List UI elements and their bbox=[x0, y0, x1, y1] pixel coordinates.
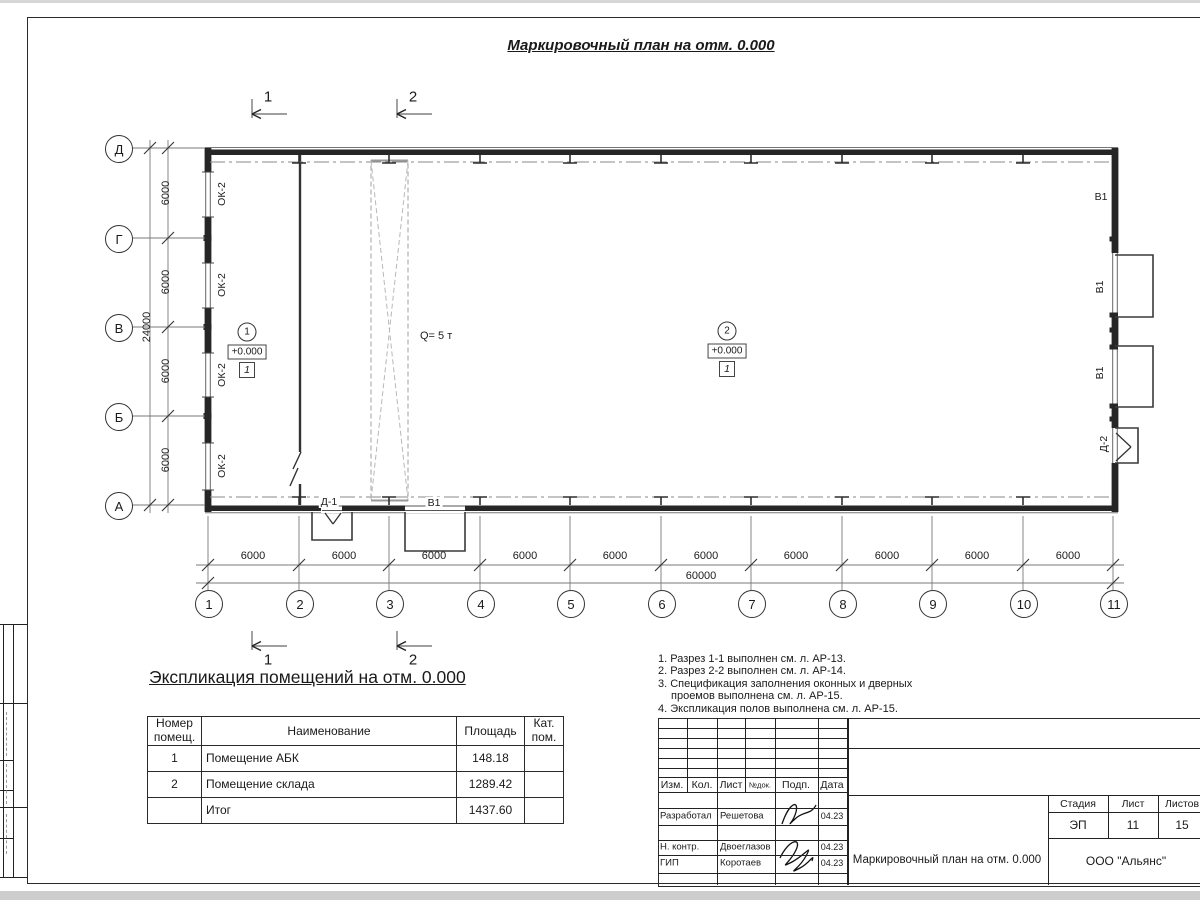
gate-mark: В1 bbox=[1094, 367, 1106, 380]
tb-role: Н. контр. bbox=[660, 842, 699, 853]
tb-header-data: Дата bbox=[820, 779, 843, 791]
tb-line bbox=[818, 718, 819, 885]
room-cat bbox=[525, 797, 564, 823]
gate-mark: В1 bbox=[426, 497, 443, 509]
tb-date: 04.23 bbox=[821, 858, 844, 868]
dim-6000: 6000 bbox=[160, 181, 172, 205]
table-header-row: Номер помещ. Наименование Площадь Кат. п… bbox=[148, 717, 564, 746]
table-row: 1 Помещение АБК 148.18 bbox=[148, 745, 564, 771]
table-row: Итог 1437.60 bbox=[148, 797, 564, 823]
axis-bubble-row: Б bbox=[105, 403, 133, 431]
note-line: 3. Спецификация заполнения оконных и две… bbox=[658, 678, 912, 690]
tb-line bbox=[1048, 812, 1200, 813]
dim-6000: 6000 bbox=[603, 550, 627, 562]
room-name: Помещение АБК bbox=[202, 745, 457, 771]
walls bbox=[202, 148, 1118, 514]
dim-6000: 6000 bbox=[160, 270, 172, 294]
dim-24000: 24000 bbox=[141, 312, 153, 343]
dim-6000: 6000 bbox=[160, 448, 172, 472]
axis-bubble-col: 10 bbox=[1010, 590, 1038, 618]
dim-6000: 6000 bbox=[422, 550, 446, 562]
window-mark: ОК-2 bbox=[216, 273, 228, 297]
dim-6000: 6000 bbox=[1056, 550, 1080, 562]
axis-bubble-row: А bbox=[105, 492, 133, 520]
section-mark-2: 2 bbox=[409, 89, 417, 106]
axis-bubble-row: В bbox=[105, 314, 133, 342]
tb-line bbox=[745, 718, 746, 792]
floor-type-mark: 1 bbox=[239, 362, 255, 378]
room-num: 2 bbox=[148, 771, 202, 797]
tb-doc-title: Маркировочный план на отм. 0.000 bbox=[853, 854, 1041, 866]
room-num bbox=[148, 797, 202, 823]
gate-mark: В1 bbox=[1093, 191, 1110, 203]
axis-bubble-col: 6 bbox=[648, 590, 676, 618]
tb-line bbox=[1158, 795, 1159, 838]
sheet-title: Маркировочный план на отм. 0.000 bbox=[507, 37, 774, 54]
explication-heading: Экспликация помещений на отм. 0.000 bbox=[149, 667, 466, 688]
tb-sheets-value: 15 bbox=[1175, 818, 1188, 832]
axis-bubble-col: 3 bbox=[376, 590, 404, 618]
room-number-1: 1 bbox=[238, 323, 257, 342]
room-num: 1 bbox=[148, 745, 202, 771]
tb-sheet-value: 11 bbox=[1127, 818, 1139, 832]
col-header-area: Площадь bbox=[457, 717, 525, 746]
room-area: 148.18 bbox=[457, 745, 525, 771]
tb-date: 04.23 bbox=[821, 811, 844, 821]
table-row: 2 Помещение склада 1289.42 bbox=[148, 771, 564, 797]
tb-line bbox=[847, 748, 1200, 749]
axis-bubble-col: 7 bbox=[738, 590, 766, 618]
dim-6000: 6000 bbox=[241, 550, 265, 562]
col-header-category: Кат. пом. bbox=[525, 717, 564, 746]
note-line: 2. Разрез 2-2 выполнен см. л. АР-14. bbox=[658, 665, 912, 677]
tb-line bbox=[1048, 795, 1049, 885]
section-cut-marks bbox=[252, 99, 432, 651]
tb-header-ndok: №док. bbox=[749, 781, 771, 790]
tb-stage-label: Стадия bbox=[1060, 798, 1096, 810]
tb-line bbox=[1048, 838, 1200, 839]
axis-bubble-row: Д bbox=[105, 135, 133, 163]
tb-header-izm: Изм. bbox=[661, 779, 684, 791]
note-line: 4. Экспликация полов выполнена см. л. АР… bbox=[658, 703, 912, 715]
door-mark-d1: Д-1 bbox=[319, 496, 339, 508]
tb-date: 04.23 bbox=[821, 842, 844, 852]
col-header-number: Номер помещ. bbox=[148, 717, 202, 746]
elevation-mark: +0.000 bbox=[228, 345, 267, 360]
tb-organization: ООО "Альянс" bbox=[1086, 854, 1166, 868]
floor-type-mark: 1 bbox=[719, 361, 735, 377]
elevation-mark: +0.000 bbox=[708, 344, 747, 359]
axis-bubble-col: 8 bbox=[829, 590, 857, 618]
tb-header-kol: Кол. bbox=[692, 779, 713, 791]
dim-6000: 6000 bbox=[160, 359, 172, 383]
tb-name: Решетова bbox=[720, 811, 764, 822]
room-area: 1289.42 bbox=[457, 771, 525, 797]
dim-6000: 6000 bbox=[332, 550, 356, 562]
tb-line bbox=[847, 795, 1200, 796]
dim-6000: 6000 bbox=[694, 550, 718, 562]
axis-bubble-col: 9 bbox=[919, 590, 947, 618]
axis-bubble-col: 2 bbox=[286, 590, 314, 618]
tb-line bbox=[775, 718, 776, 885]
room-name: Помещение склада bbox=[202, 771, 457, 797]
tb-role: ГИП bbox=[660, 858, 679, 869]
tb-line bbox=[1108, 795, 1109, 838]
door-mark-d2: Д-2 bbox=[1098, 436, 1110, 452]
window-mark: ОК-2 bbox=[216, 363, 228, 387]
room-name: Итог bbox=[202, 797, 457, 823]
crane-capacity-label: Q= 5 т bbox=[420, 330, 452, 342]
note-line: 1. Разрез 1-1 выполнен см. л. АР-13. bbox=[658, 653, 912, 665]
room-cat bbox=[525, 771, 564, 797]
room-number-2: 2 bbox=[718, 322, 737, 341]
axis-bubble-col: 5 bbox=[557, 590, 585, 618]
gate-mark: В1 bbox=[1094, 281, 1106, 294]
section-mark-2-bottom: 2 bbox=[409, 652, 417, 669]
dim-6000: 6000 bbox=[784, 550, 808, 562]
dim-60000: 60000 bbox=[684, 570, 719, 582]
tb-name: Двоеглазов bbox=[720, 842, 771, 853]
tb-line bbox=[687, 718, 688, 792]
axis-bubble-col: 4 bbox=[467, 590, 495, 618]
tb-sheet-label: Лист bbox=[1122, 798, 1145, 810]
section-mark-1-bottom: 1 bbox=[264, 652, 272, 669]
tb-role: Разработал bbox=[660, 811, 712, 822]
partition-wall bbox=[290, 155, 301, 505]
tb-line bbox=[847, 718, 849, 885]
column-marks bbox=[292, 155, 1030, 505]
section-mark-1: 1 bbox=[264, 89, 272, 106]
tb-sheets-label: Листов bbox=[1165, 798, 1199, 810]
explication-table: Номер помещ. Наименование Площадь Кат. п… bbox=[147, 716, 564, 824]
window-mark: ОК-2 bbox=[216, 454, 228, 478]
axis-bubble-col: 1 bbox=[195, 590, 223, 618]
axis-bubble-row: Г bbox=[105, 225, 133, 253]
note-line: проемов выполнена см. л. АР-15. bbox=[658, 690, 912, 702]
tb-name: Коротаев bbox=[720, 858, 761, 869]
col-header-name: Наименование bbox=[202, 717, 457, 746]
room-area: 1437.60 bbox=[457, 797, 525, 823]
crane-runway bbox=[371, 161, 408, 501]
room-cat bbox=[525, 745, 564, 771]
drawing-sheet: Маркировочный план на отм. 0.000 1 2 1 2… bbox=[0, 0, 1200, 900]
axis-bubble-col: 11 bbox=[1100, 590, 1128, 618]
tb-stage-value: ЭП bbox=[1069, 818, 1086, 832]
tb-header-podp: Подп. bbox=[782, 779, 810, 791]
window-mark: ОК-2 bbox=[216, 182, 228, 206]
dim-6000: 6000 bbox=[513, 550, 537, 562]
dim-6000: 6000 bbox=[965, 550, 989, 562]
tb-header-list: Лист bbox=[720, 779, 743, 791]
dimension-lines bbox=[131, 140, 1124, 590]
axis-dashdot-lines bbox=[210, 162, 1112, 497]
tb-line bbox=[717, 718, 718, 885]
dim-6000: 6000 bbox=[875, 550, 899, 562]
notes-block: 1. Разрез 1-1 выполнен см. л. АР-13. 2. … bbox=[658, 653, 912, 715]
